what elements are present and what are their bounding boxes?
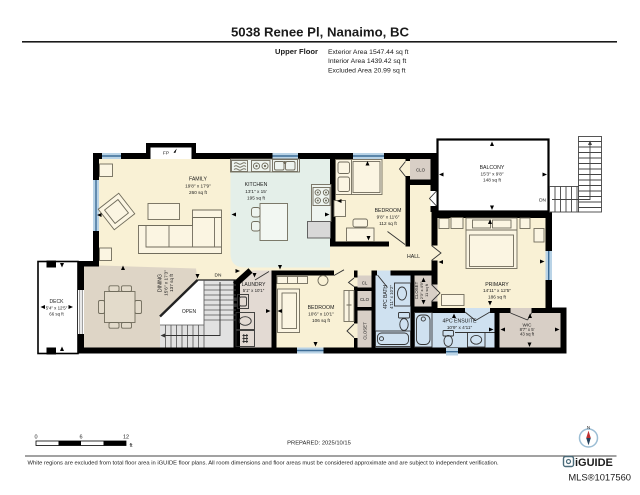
svg-text:14′11″ x 12′5″: 14′11″ x 12′5″ — [483, 288, 511, 293]
svg-text:148 sq ft: 148 sq ft — [483, 178, 502, 183]
svg-text:Exterior Area 1547.44 sq ft: Exterior Area 1547.44 sq ft — [328, 49, 409, 56]
svg-text:BALCONY: BALCONY — [480, 165, 505, 171]
svg-text:CLOSET: CLOSET — [363, 322, 368, 340]
svg-text:CL: CL — [362, 281, 368, 286]
svg-text:DN: DN — [215, 273, 222, 279]
svg-text:66 sq ft: 66 sq ft — [49, 312, 64, 317]
svg-text:13′1″ x 15′: 13′1″ x 15′ — [245, 189, 267, 194]
svg-text:10′9″ x 4′11″: 10′9″ x 4′11″ — [447, 325, 473, 330]
svg-text:43 sq ft: 43 sq ft — [520, 332, 535, 337]
svg-text:PRIMARY: PRIMARY — [485, 282, 509, 288]
svg-text:OPEN: OPEN — [182, 309, 197, 315]
svg-text:6: 6 — [79, 435, 82, 441]
svg-text:MLS®1017560: MLS®1017560 — [568, 472, 631, 483]
svg-text:DN: DN — [539, 198, 546, 204]
svg-text:15′6″ x 17′3″: 15′6″ x 17′3″ — [164, 270, 169, 296]
svg-text:5′1″ x 10′1″: 5′1″ x 10′1″ — [243, 288, 265, 293]
svg-text:4PC ENSUITE: 4PC ENSUITE — [442, 319, 477, 325]
svg-text:ft: ft — [130, 443, 134, 449]
svg-text:White regions are excluded fro: White regions are excluded from total fl… — [28, 461, 499, 467]
svg-text:FP: FP — [163, 150, 169, 156]
svg-text:BEDROOM: BEDROOM — [308, 305, 335, 311]
svg-text:195 sq ft: 195 sq ft — [247, 196, 266, 201]
svg-text:12: 12 — [123, 435, 129, 441]
svg-text:Excluded Area 20.99 sq ft: Excluded Area 20.99 sq ft — [328, 68, 406, 75]
svg-text:DECK: DECK — [50, 299, 65, 305]
svg-text:4′11″ x 10′2″: 4′11″ x 10′2″ — [389, 285, 394, 309]
svg-text:10′6″ x 10′1″: 10′6″ x 10′1″ — [308, 312, 334, 317]
svg-text:9′8″ x 11′6″: 9′8″ x 11′6″ — [377, 215, 400, 220]
svg-text:PREPARED: 2025/10/15: PREPARED: 2025/10/15 — [287, 441, 351, 447]
svg-text:FAMILY: FAMILY — [189, 177, 208, 183]
svg-text:15′3″ x 9′8″: 15′3″ x 9′8″ — [480, 171, 503, 176]
svg-text:BEDROOM: BEDROOM — [375, 208, 402, 214]
svg-text:11 sq ft: 11 sq ft — [424, 283, 429, 297]
svg-text:106 sq ft: 106 sq ft — [312, 318, 331, 323]
svg-text:CLO: CLO — [416, 168, 426, 173]
svg-text:112 sq ft: 112 sq ft — [379, 221, 397, 226]
svg-text:HALL: HALL — [407, 254, 420, 260]
svg-text:260 sq ft: 260 sq ft — [189, 190, 208, 195]
svg-text:5′4″ x 12′5″: 5′4″ x 12′5″ — [46, 305, 68, 310]
svg-text:KITCHEN: KITCHEN — [245, 182, 268, 188]
svg-text:137 sq ft: 137 sq ft — [169, 273, 174, 292]
svg-text:N: N — [587, 425, 590, 430]
svg-text:186 sq ft: 186 sq ft — [488, 294, 507, 299]
svg-text:iGUIDE: iGUIDE — [575, 457, 613, 469]
svg-text:19′8″ x 17′9″: 19′8″ x 17′9″ — [185, 183, 211, 188]
svg-text:CLO: CLO — [360, 297, 370, 302]
svg-text:0: 0 — [34, 435, 37, 441]
svg-text:Interior Area 1439.42 sq ft: Interior Area 1439.42 sq ft — [328, 58, 406, 65]
svg-text:Upper Floor: Upper Floor — [275, 47, 318, 56]
svg-text:5038 Renee Pl, Nanaimo, BC: 5038 Renee Pl, Nanaimo, BC — [231, 25, 410, 40]
